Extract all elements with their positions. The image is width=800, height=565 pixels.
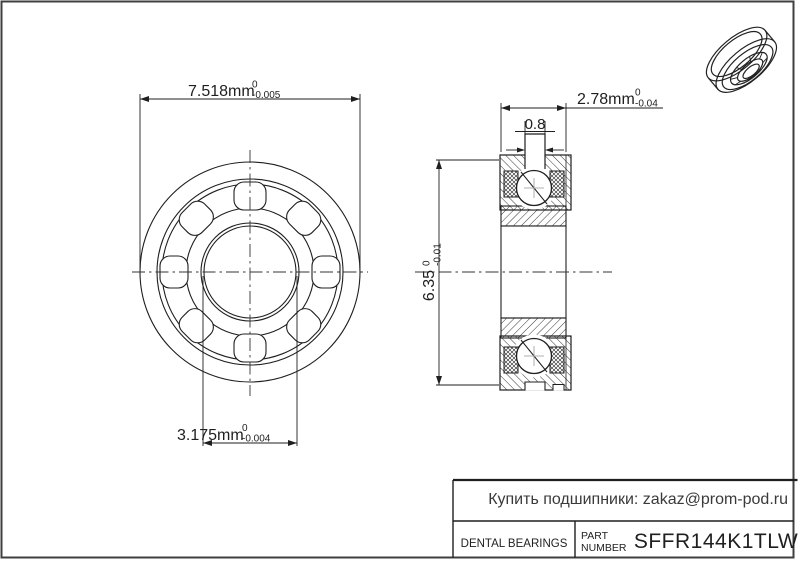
- ball: [175, 304, 217, 346]
- cage-hatch: [504, 347, 518, 373]
- dim-bore-value: 3.175mm: [177, 427, 244, 444]
- contact-text: Купить подшипники: zakaz@prom-pod.ru: [488, 491, 788, 508]
- cage-section-left: [504, 347, 518, 373]
- cage-section-right: [550, 171, 564, 197]
- part-label-line1: PART: [581, 530, 609, 542]
- flange-notch: [553, 385, 564, 391]
- dim-flange-od-tol-upper: 0: [252, 80, 258, 91]
- arrowhead: [140, 96, 149, 102]
- dim-od-tol-upper: 0: [422, 260, 433, 266]
- arrowhead: [517, 148, 525, 153]
- flange-notch: [525, 382, 545, 391]
- dim-flange-od-value: 7.518mm: [188, 83, 255, 100]
- dim-flange-od-tol-lower: -0.005: [252, 90, 281, 101]
- ball: [282, 197, 324, 239]
- dim-bore-tol-lower: -0.004: [242, 434, 271, 445]
- title-block: Купить подшипники: zakaz@prom-pod.ru DEN…: [453, 480, 798, 558]
- category-label: DENTAL BEARINGS: [461, 538, 568, 550]
- arrowhead: [436, 376, 442, 385]
- section-bottom-assembly: [500, 318, 571, 391]
- drawing-frame: [2, 2, 794, 558]
- cage-hatch: [550, 347, 564, 373]
- dim-od-value: 6.35: [421, 270, 438, 301]
- dim-od-tol-lower: -0.01: [433, 243, 444, 266]
- arrowhead: [501, 105, 510, 111]
- cage-section-right: [550, 347, 564, 373]
- engineering-drawing: 7.518mm 0 -0.005 3.175mm 0 -0.004: [0, 0, 800, 565]
- part-label-line2: NUMBER: [581, 542, 627, 554]
- cage-hatch: [550, 171, 564, 197]
- drawing-canvas: 7.518mm 0 -0.005 3.175mm 0 -0.004: [0, 0, 800, 565]
- arrowhead: [288, 440, 297, 446]
- cage-section-left: [504, 171, 518, 197]
- section-top-assembly: [500, 134, 571, 226]
- iso-view: [698, 18, 785, 102]
- dim-outer-diameter: 6.35 0 -0.01: [421, 160, 499, 385]
- front-view: [132, 150, 368, 396]
- ball: [282, 304, 324, 346]
- dim-bore: 3.175mm 0 -0.004: [177, 276, 297, 446]
- dim-flange-width-value: 0.8: [525, 116, 546, 133]
- flange-slot: [525, 134, 545, 169]
- dim-width-tol-upper: 0: [635, 88, 641, 99]
- part-number: SFFR144K1TLW: [634, 530, 798, 553]
- dim-width-tol-lower: -0.04: [635, 99, 658, 110]
- arrowhead: [545, 148, 553, 153]
- cage-hatch: [504, 171, 518, 197]
- dim-width-value: 2.78mm: [577, 91, 635, 108]
- arrowhead: [557, 105, 566, 111]
- section-view: [415, 134, 612, 391]
- ball: [175, 197, 217, 239]
- dim-bore-tol-upper: 0: [242, 423, 248, 434]
- arrowhead: [436, 160, 442, 169]
- arrowhead: [351, 96, 360, 102]
